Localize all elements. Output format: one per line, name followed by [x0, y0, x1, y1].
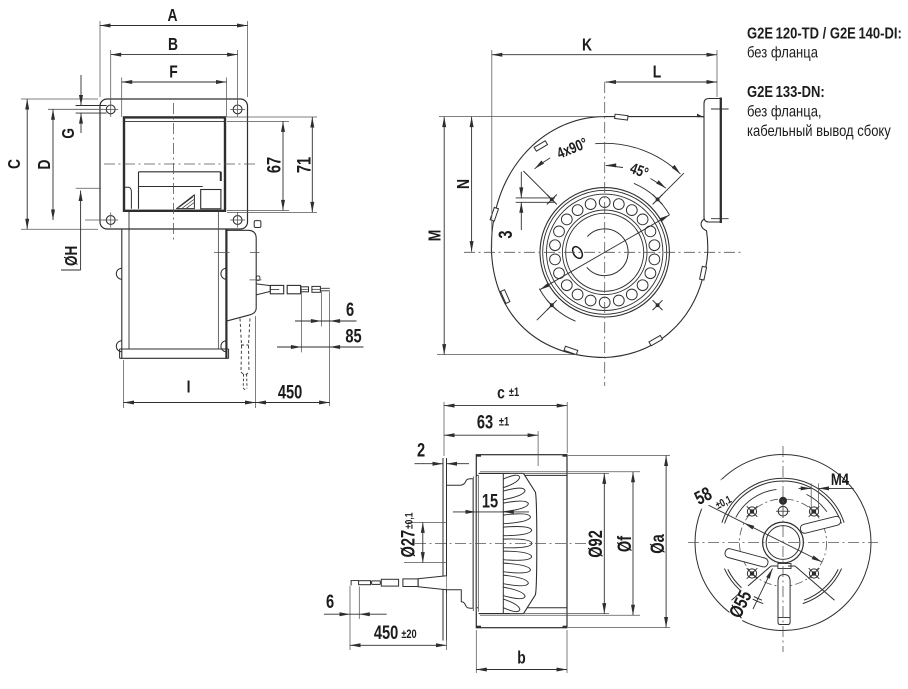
- svg-text:±1: ±1: [509, 386, 519, 399]
- svg-text:C: C: [4, 159, 24, 169]
- svg-text:M4: M4: [831, 470, 850, 489]
- svg-text:450: 450: [374, 622, 398, 643]
- svg-text:85: 85: [345, 326, 361, 347]
- svg-text:A: A: [167, 5, 177, 25]
- svg-text:N: N: [453, 179, 473, 189]
- svg-text:6: 6: [326, 591, 334, 612]
- svg-text:±20: ±20: [401, 628, 416, 641]
- svg-text:D: D: [34, 159, 54, 169]
- svg-text:Øf: Øf: [614, 536, 635, 553]
- svg-text:без фланца,: без фланца,: [747, 104, 822, 121]
- svg-text:Øa: Øa: [647, 534, 668, 554]
- svg-text:450: 450: [278, 382, 302, 403]
- svg-text:B: B: [168, 34, 178, 54]
- svg-text:L: L: [653, 62, 662, 82]
- svg-text:ØH: ØH: [62, 246, 81, 266]
- svg-text:c: c: [497, 383, 505, 403]
- svg-text:G: G: [58, 128, 78, 139]
- svg-text:Ø27: Ø27: [398, 530, 419, 558]
- svg-text:63: 63: [477, 411, 493, 432]
- svg-text:G2E 133-DN:: G2E 133-DN:: [747, 84, 825, 101]
- svg-text:b: b: [517, 648, 526, 668]
- svg-text:G2E 120-TD / G2E 140-DI:: G2E 120-TD / G2E 140-DI:: [747, 26, 902, 43]
- svg-text:кабельный вывод сбоку: кабельный вывод сбоку: [747, 123, 892, 140]
- svg-text:6: 6: [346, 299, 354, 320]
- svg-text:67: 67: [264, 157, 285, 173]
- svg-text:F: F: [169, 62, 178, 82]
- svg-text:2: 2: [417, 440, 425, 461]
- svg-text:M: M: [425, 230, 445, 242]
- svg-text:15: 15: [482, 491, 498, 512]
- svg-text:Ø92: Ø92: [585, 530, 606, 558]
- svg-text:±1: ±1: [499, 415, 509, 428]
- svg-text:±0,1: ±0,1: [404, 512, 416, 529]
- svg-text:без фланца: без фланца: [747, 45, 818, 62]
- svg-text:71: 71: [294, 157, 315, 173]
- svg-text:3: 3: [495, 231, 516, 239]
- svg-text:K: K: [582, 35, 592, 55]
- svg-text:I: I: [187, 377, 191, 397]
